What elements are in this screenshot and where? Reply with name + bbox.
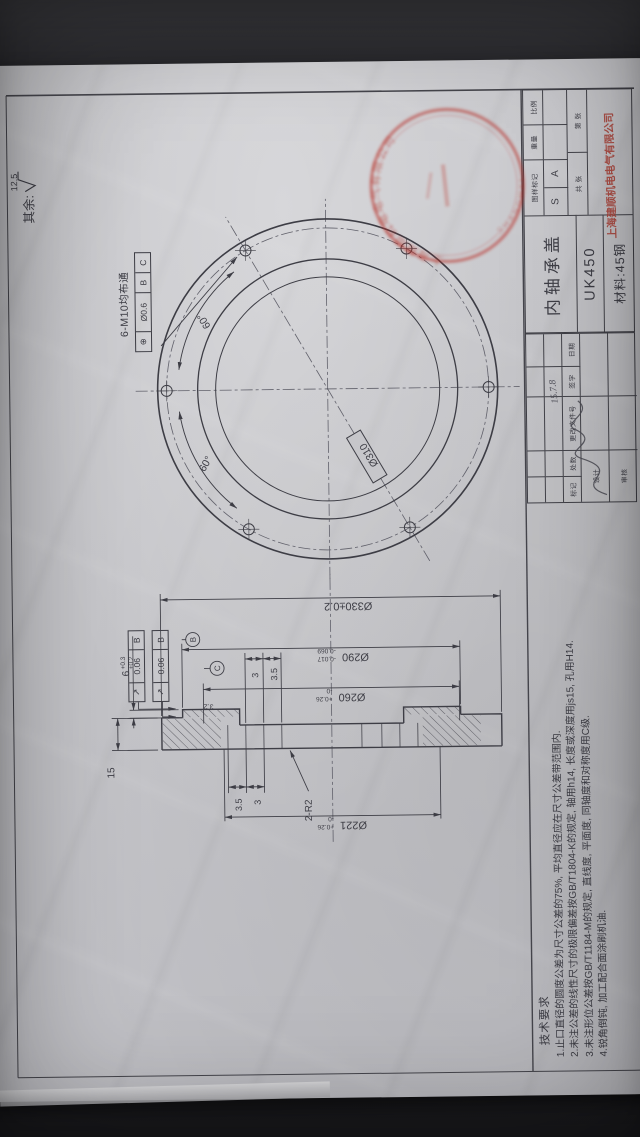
mark-a: A [544, 159, 568, 187]
datum-b: B [189, 637, 198, 642]
dim-groove-r1: 3 [250, 673, 260, 678]
roughness-value: 12.5 [9, 174, 19, 192]
engineering-drawing: 60° 60° Ø310 [0, 60, 640, 1102]
rev-mark-label: 标记 [564, 476, 582, 502]
dim-groove-l2: 3 [253, 800, 263, 805]
scale-label: 比例 [523, 90, 543, 124]
svg-text:+0.3: +0.3 [120, 656, 127, 669]
dim-221: Ø221 [340, 818, 367, 830]
position-datum-c: C [135, 253, 150, 272]
angle-dim-left: 60° [197, 454, 215, 474]
svg-text:+0.26: +0.26 [316, 695, 333, 702]
dim-groove-r2: 3.5 [269, 668, 279, 681]
dim-330: Ø330±0.2 [324, 599, 372, 612]
runout-frame-2: ↗ 0.06 B [152, 630, 170, 702]
rev-sign-label: 签字 [562, 366, 580, 396]
runout-datum: B [129, 631, 144, 649]
front-view: 60° 60° Ø310 [133, 197, 522, 582]
sheet-total-label: 共 张 [568, 152, 589, 215]
section-view: Ø330±0.2 Ø290 -0.017 -0.069 Ø260 +0.26 -… [104, 572, 503, 845]
dim-groove-l1: 3.5 [234, 798, 244, 811]
part-model: UK450 [577, 215, 605, 332]
datum-c: C [213, 665, 222, 671]
weight-label: 重量 [523, 124, 543, 159]
technical-requirements: 技术要求 1.止口直径的圆度公差为尺寸公差的75%, 平均直径应在尺寸公差带范围… [530, 509, 612, 1058]
paper-sheet: 60° 60° Ø310 [0, 58, 640, 1102]
bolt-circle-dia-label: Ø310 [347, 430, 388, 483]
svg-text:-0: -0 [326, 687, 332, 694]
drawing-mark-label: 图样标记 [524, 159, 545, 215]
runout-symbol: ↗ [129, 682, 144, 701]
position-symbol: ⊕ [136, 331, 151, 351]
rev-design-label: 设计 [581, 449, 610, 501]
datum-flags: B C [186, 632, 225, 675]
surface-finish-32: 3.2 [204, 702, 214, 709]
svg-text:+0.26: +0.26 [317, 823, 334, 830]
runout-tolerance: 0.06 [129, 649, 144, 682]
dim-15: 15 [106, 767, 117, 779]
position-tolerance-frame: ⊕ Ø0.6 B C [134, 252, 152, 352]
dim-290: Ø290 [342, 650, 369, 662]
runout-symbol: ↗ [153, 682, 168, 701]
surface-roughness-note: 其余: 12.5 [15, 170, 38, 224]
roughness-symbol: 12.5 [15, 170, 37, 192]
bolt-pattern-note: 6-M10均布通 [116, 252, 132, 356]
fillet-label: 2-R2 [304, 799, 315, 821]
sheet-number-label: 第 张 [567, 90, 588, 152]
photo-frame: 60° 60° Ø310 [0, 0, 640, 1137]
rev-doc-label: 更改文件号 [563, 396, 582, 450]
rev-count-label: 处数 [563, 450, 581, 476]
runout-frame-1: ↗ 0.06 B [128, 630, 146, 702]
roughness-prefix: 其余: [18, 195, 37, 224]
mark-s: S [544, 187, 568, 215]
rev-date-label: 日期 [562, 334, 580, 366]
runout-tolerance: 0.06 [153, 649, 168, 682]
rev-check-label: 审核 [609, 449, 638, 501]
svg-text:-0.017: -0.017 [317, 655, 336, 662]
revision-block: 标记 处数 更改文件号 签字 日期 设计 审核 [525, 332, 637, 503]
dim-260: Ø260 [338, 690, 365, 702]
position-datum-b: B [135, 272, 150, 292]
svg-text:-0: -0 [328, 815, 334, 822]
runout-datum: B [153, 631, 168, 649]
title-block: 内轴承盖 UK450 材料:45钢 图样标记 重量 比例 S A [522, 88, 635, 333]
company-name: 上海建顺机电电气有限公司 [601, 112, 620, 238]
part-name: 内轴承盖 [525, 215, 578, 333]
svg-text:-0.069: -0.069 [317, 647, 336, 654]
position-tolerance: Ø0.6 [135, 292, 150, 331]
